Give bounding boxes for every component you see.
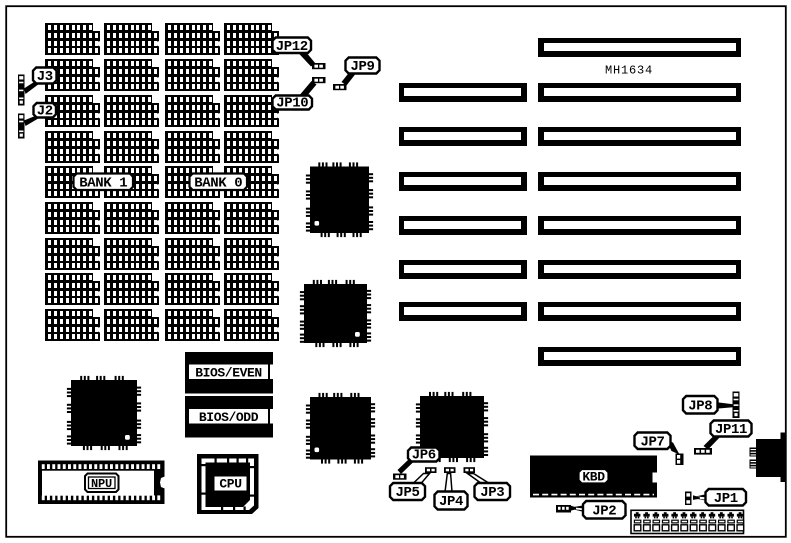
svg-text:JP2: JP2 [592,503,616,519]
svg-text:BIOS/EVEN: BIOS/EVEN [195,366,262,381]
svg-text:JP1: JP1 [714,491,738,507]
svg-text:BANK 1: BANK 1 [79,175,127,191]
svg-text:JP11: JP11 [715,422,747,438]
svg-text:KBD: KBD [582,470,605,485]
svg-text:J2: J2 [37,103,53,119]
svg-text:JP7: JP7 [640,434,664,450]
svg-text:JP12: JP12 [276,39,308,55]
svg-text:J3: J3 [37,69,53,85]
svg-text:JP5: JP5 [395,485,419,501]
svg-text:CPU: CPU [219,477,241,492]
svg-text:JP6: JP6 [412,448,436,464]
svg-text:JP3: JP3 [480,485,504,501]
svg-text:MH1634: MH1634 [605,64,653,78]
svg-text:JP10: JP10 [276,96,308,112]
svg-text:JP8: JP8 [688,398,712,414]
svg-text:JP9: JP9 [350,59,374,75]
svg-text:BANK 0: BANK 0 [194,175,242,191]
svg-text:NPU: NPU [91,477,112,491]
svg-text:BIOS/ODD: BIOS/ODD [199,410,259,425]
svg-text:JP4: JP4 [439,494,463,510]
